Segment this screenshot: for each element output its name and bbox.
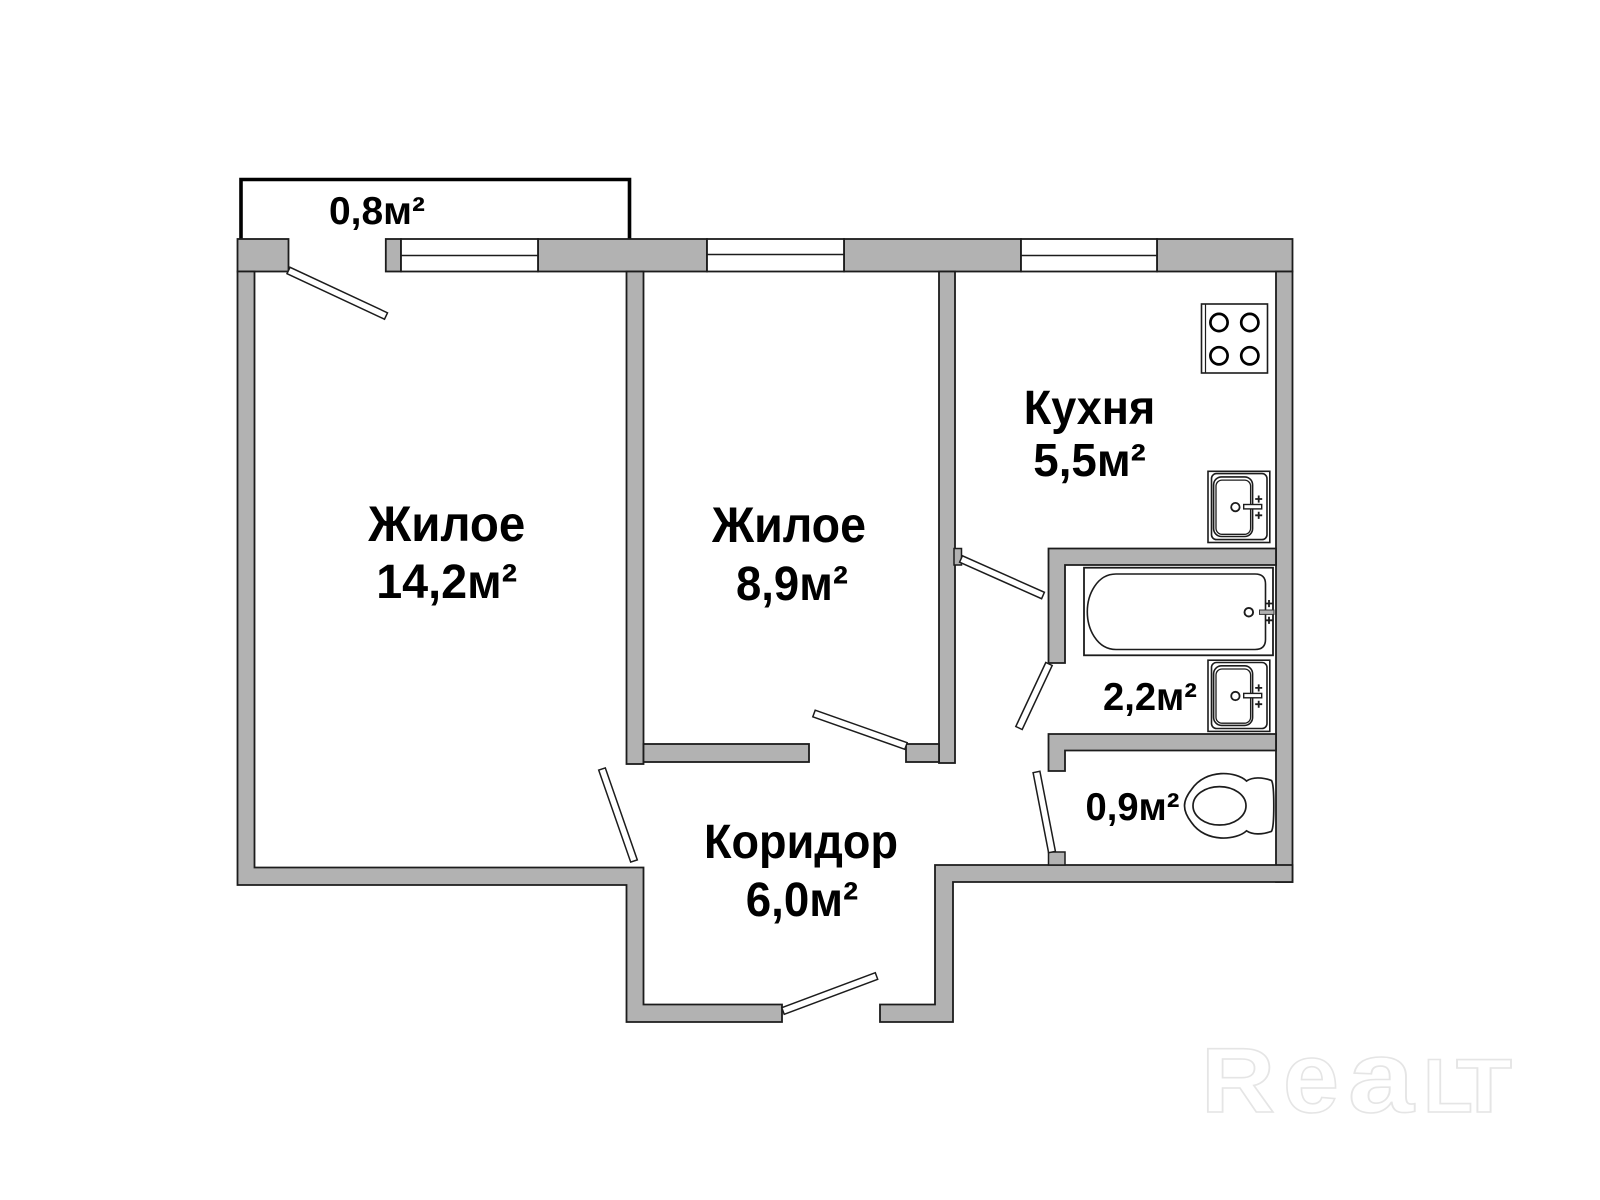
svg-text:14,2м²: 14,2м² [376, 556, 517, 609]
svg-text:8,9м²: 8,9м² [736, 558, 848, 611]
svg-text:Коридор: Коридор [704, 816, 898, 869]
svg-text:a: a [1348, 1020, 1415, 1134]
svg-text:Кухня: Кухня [1024, 382, 1156, 435]
svg-text:0,9м²: 0,9м² [1086, 786, 1180, 829]
svg-text:6,0м²: 6,0м² [746, 874, 859, 927]
svg-text:Жилое: Жилое [711, 497, 866, 553]
svg-text:R: R [1201, 1030, 1275, 1132]
svg-text:2,2м²: 2,2м² [1103, 676, 1197, 719]
svg-text:5,5м²: 5,5м² [1033, 434, 1146, 486]
svg-text:Жилое: Жилое [367, 496, 525, 552]
svg-text:0,8м²: 0,8м² [329, 190, 425, 233]
svg-text:T: T [1456, 1044, 1512, 1129]
svg-text:e: e [1283, 1022, 1339, 1134]
